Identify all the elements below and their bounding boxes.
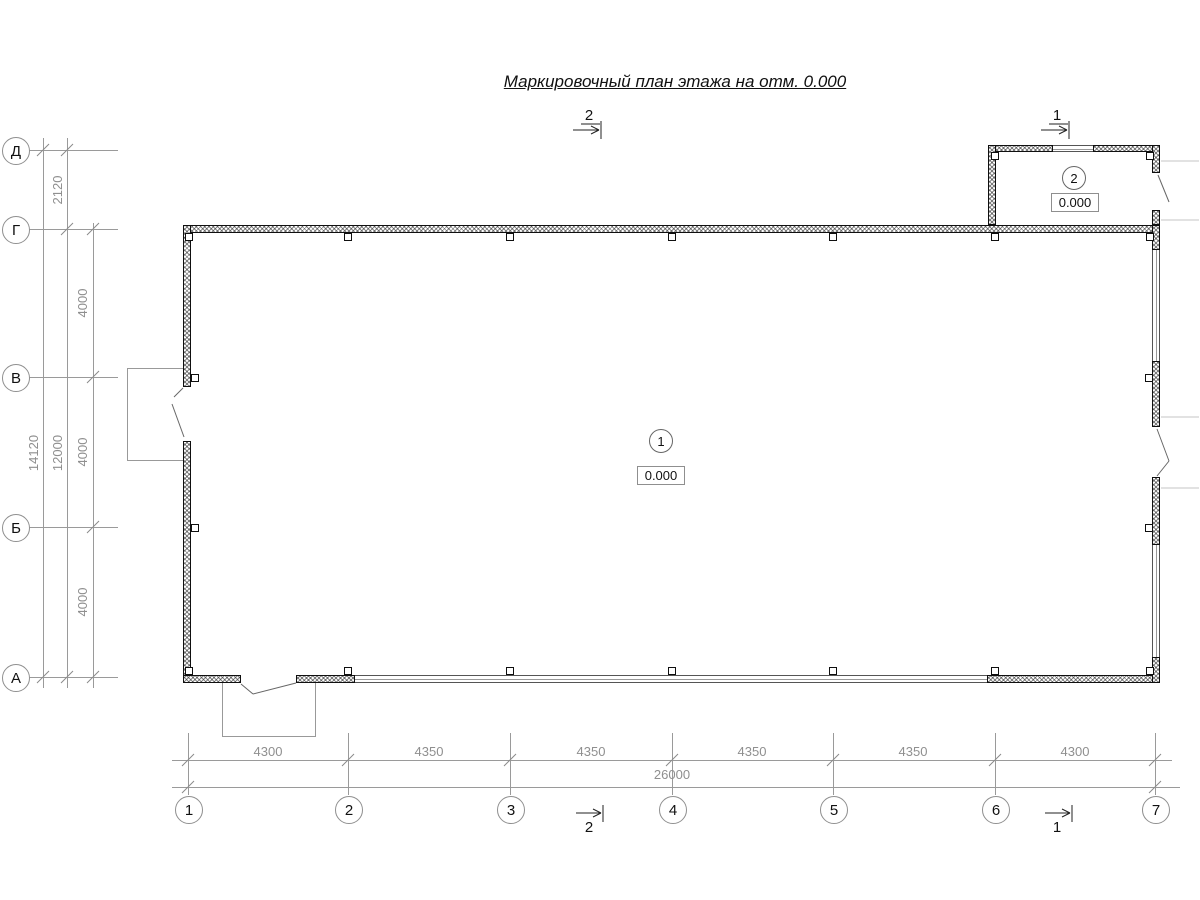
floor-plan-drawing: Маркировочный план этажа на отм. 0.000 Д… [0, 0, 1200, 900]
linework-layer [0, 0, 1200, 900]
door-leaf-lines [172, 175, 1169, 694]
section-mark-arrows [573, 121, 1072, 822]
dimension-tick-marks [37, 144, 1161, 793]
entry-platform-lines [1161, 161, 1199, 488]
